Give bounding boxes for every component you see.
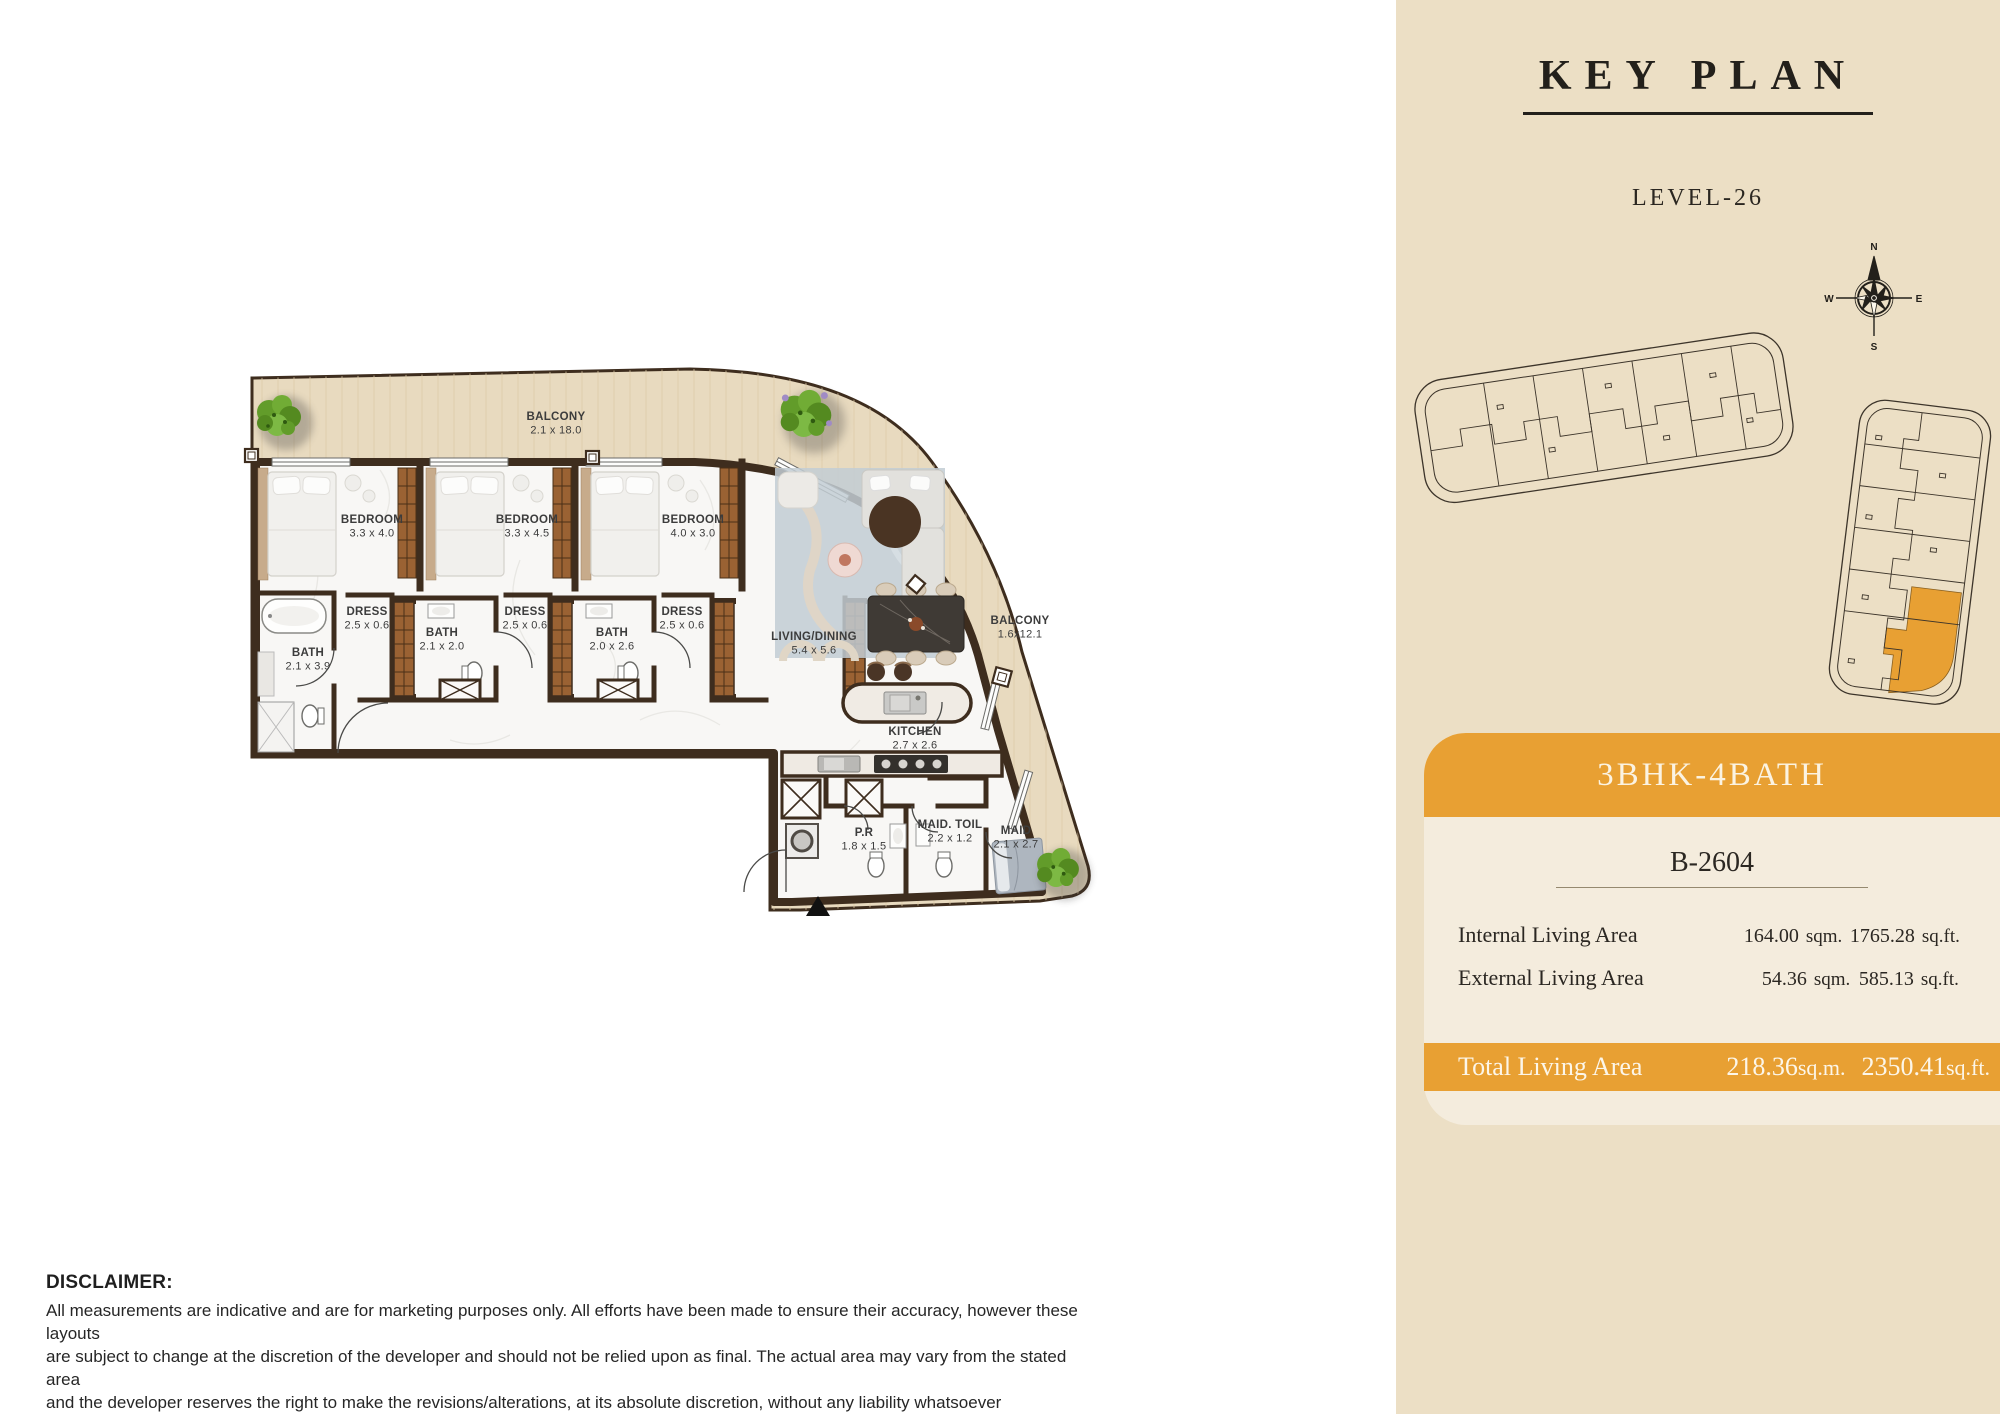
beds — [258, 468, 698, 580]
compass-w: W — [1824, 294, 1834, 305]
room-label-bath-2: BATH2.1 x 2.0 — [420, 627, 465, 653]
room-label-dress-2: DRESS2.5 x 0.6 — [503, 606, 548, 632]
area-sqft-value: 585.13 — [1859, 968, 1914, 991]
disclaimer-line: and the developer reserves the right to … — [46, 1391, 1082, 1414]
compass-e: E — [1916, 294, 1923, 305]
room-label-bath-1: BATH2.1 x 3.9 — [286, 647, 331, 673]
total-label: Total Living Area — [1458, 1052, 1726, 1082]
room-label-balcony-top: BALCONY2.1 x 18.0 — [527, 411, 586, 437]
area-row-external: External Living Area 54.36 sqm. 585.13 s… — [1458, 965, 1964, 991]
key-plan-level: LEVEL-26 — [1396, 185, 2000, 212]
total-sqm-value: 218.36 — [1726, 1052, 1798, 1081]
highlighted-unit — [1879, 584, 1962, 700]
disclaimer-title: DISCLAIMER: — [46, 1272, 1082, 1294]
area-sqm-unit: sqm. — [1807, 969, 1859, 991]
disclaimer-line: All measurements are indicative and are … — [46, 1299, 1082, 1345]
area-sqm-unit: sqm. — [1799, 926, 1850, 948]
floor-plan: BALCONY2.1 x 18.0BEDROOM3.3 x 4.0BEDROOM… — [240, 360, 1120, 920]
key-plan-title: KEY PLAN — [1523, 52, 1873, 115]
key-plan-map — [1396, 330, 2000, 760]
page: BALCONY2.1 x 18.0BEDROOM3.3 x 4.0BEDROOM… — [0, 0, 2000, 1414]
area-row-internal: Internal Living Area 164.00 sqm. 1765.28… — [1458, 922, 1964, 948]
room-label-kitchen: KITCHEN2.7 x 2.6 — [888, 726, 941, 752]
unit-number-underline — [1556, 887, 1868, 888]
area-sqft-unit: sq.ft. — [1914, 969, 1964, 991]
room-label-bedroom-3: BEDROOM4.0 x 3.0 — [662, 514, 724, 540]
building-a-outline — [1411, 330, 1797, 507]
room-label-bath-3: BATH2.0 x 2.6 — [590, 627, 635, 653]
unit-number: B-2604 — [1424, 847, 2000, 879]
building-b-outline — [1826, 397, 1993, 707]
room-label-dress-3: DRESS2.5 x 0.6 — [660, 606, 705, 632]
total-area-bar: Total Living Area 218.36sq.m. 2350.41sq.… — [1424, 1043, 2000, 1091]
unit-info-card: 3BHK-4BATH B-2604 Internal Living Area 1… — [1424, 733, 2000, 1125]
area-label: External Living Area — [1458, 965, 1694, 991]
room-label-dress-1: DRESS2.5 x 0.6 — [345, 606, 390, 632]
area-sqft-value: 1765.28 — [1850, 925, 1915, 948]
disclaimer: DISCLAIMER: All measurements are indicat… — [46, 1272, 1082, 1414]
total-sqm-unit: sq.m. — [1798, 1055, 1846, 1080]
room-label-bedroom-1: BEDROOM3.3 x 4.0 — [341, 514, 403, 540]
total-sqft-value: 2350.41 — [1862, 1052, 1947, 1081]
unit-type-header: 3BHK-4BATH — [1424, 733, 2000, 817]
key-plan-sidebar: KEY PLAN LEVEL-26 N S W E — [1396, 0, 2000, 1414]
compass-n: N — [1870, 242, 1877, 253]
total-sqft-unit: sq.ft. — [1946, 1055, 1990, 1080]
room-label-balcony-right: BALCONY1.6x12.1 — [991, 615, 1050, 641]
area-sqft-unit: sq.ft. — [1915, 926, 1964, 948]
room-label-bedroom-2: BEDROOM3.3 x 4.5 — [496, 514, 558, 540]
area-sqm-value: 164.00 — [1689, 925, 1799, 948]
area-label: Internal Living Area — [1458, 922, 1689, 948]
area-sqm-value: 54.36 — [1694, 968, 1807, 991]
disclaimer-line: are subject to change at the discretion … — [46, 1345, 1082, 1391]
